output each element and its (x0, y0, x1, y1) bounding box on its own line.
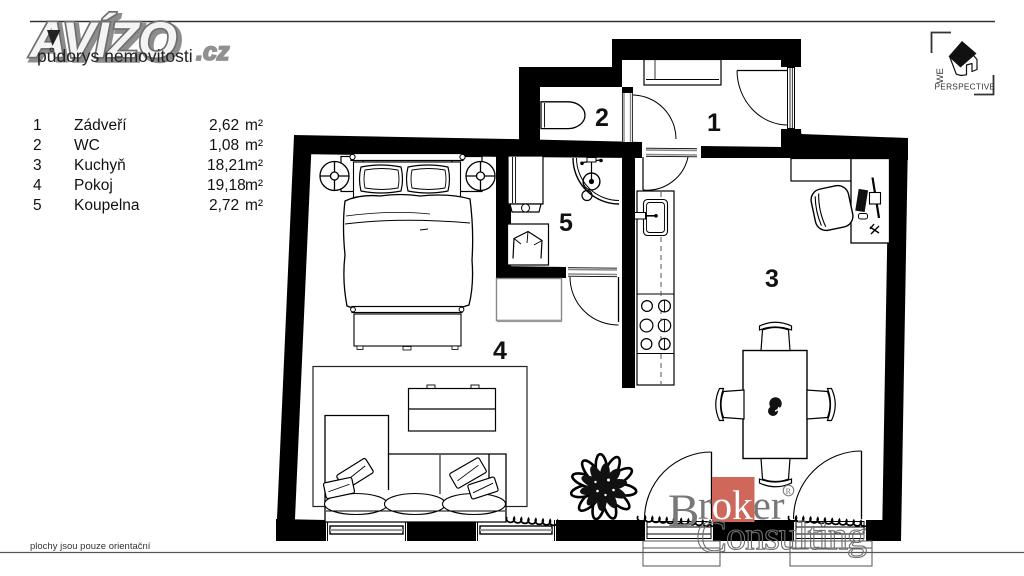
svg-text:3: 3 (765, 265, 779, 293)
svg-text:onsulting: onsulting (726, 513, 867, 558)
svg-text:plochy jsou pouze orientační: plochy jsou pouze orientační (30, 541, 151, 552)
svg-text:5: 5 (33, 197, 42, 214)
svg-text:1: 1 (707, 109, 721, 137)
svg-text:3: 3 (33, 157, 42, 174)
svg-text:PERSPECTIVE: PERSPECTIVE (935, 82, 996, 92)
svg-text:1: 1 (33, 117, 42, 134)
svg-text:R: R (786, 487, 792, 496)
svg-text:Kuchyň: Kuchyň (74, 157, 126, 174)
svg-text:půdorys nemovitosti: půdorys nemovitosti (37, 46, 193, 66)
svg-text:C: C (696, 511, 727, 563)
svg-text:4: 4 (493, 337, 507, 365)
svg-text:2,72: 2,72 (209, 197, 239, 214)
svg-text:m²: m² (245, 137, 263, 154)
svg-text:2: 2 (595, 104, 609, 132)
svg-text:.cz: .cz (196, 38, 230, 66)
svg-text:5: 5 (559, 209, 573, 237)
svg-text:Koupelna: Koupelna (74, 197, 140, 214)
svg-text:m²: m² (245, 117, 263, 134)
svg-text:2: 2 (33, 137, 42, 154)
svg-text:Pokoj: Pokoj (74, 177, 113, 194)
svg-text:4: 4 (33, 177, 42, 194)
svg-text:m²: m² (245, 177, 263, 194)
svg-text:m²: m² (245, 157, 263, 174)
svg-text:m²: m² (245, 197, 263, 214)
svg-text:2,62: 2,62 (209, 117, 239, 134)
svg-text:18,21: 18,21 (207, 157, 246, 174)
svg-text:B: B (668, 485, 699, 537)
svg-text:Zádveří: Zádveří (74, 117, 127, 134)
svg-text:1,08: 1,08 (209, 137, 239, 154)
svg-text:WC: WC (74, 137, 100, 154)
svg-text:19,18: 19,18 (207, 177, 246, 194)
